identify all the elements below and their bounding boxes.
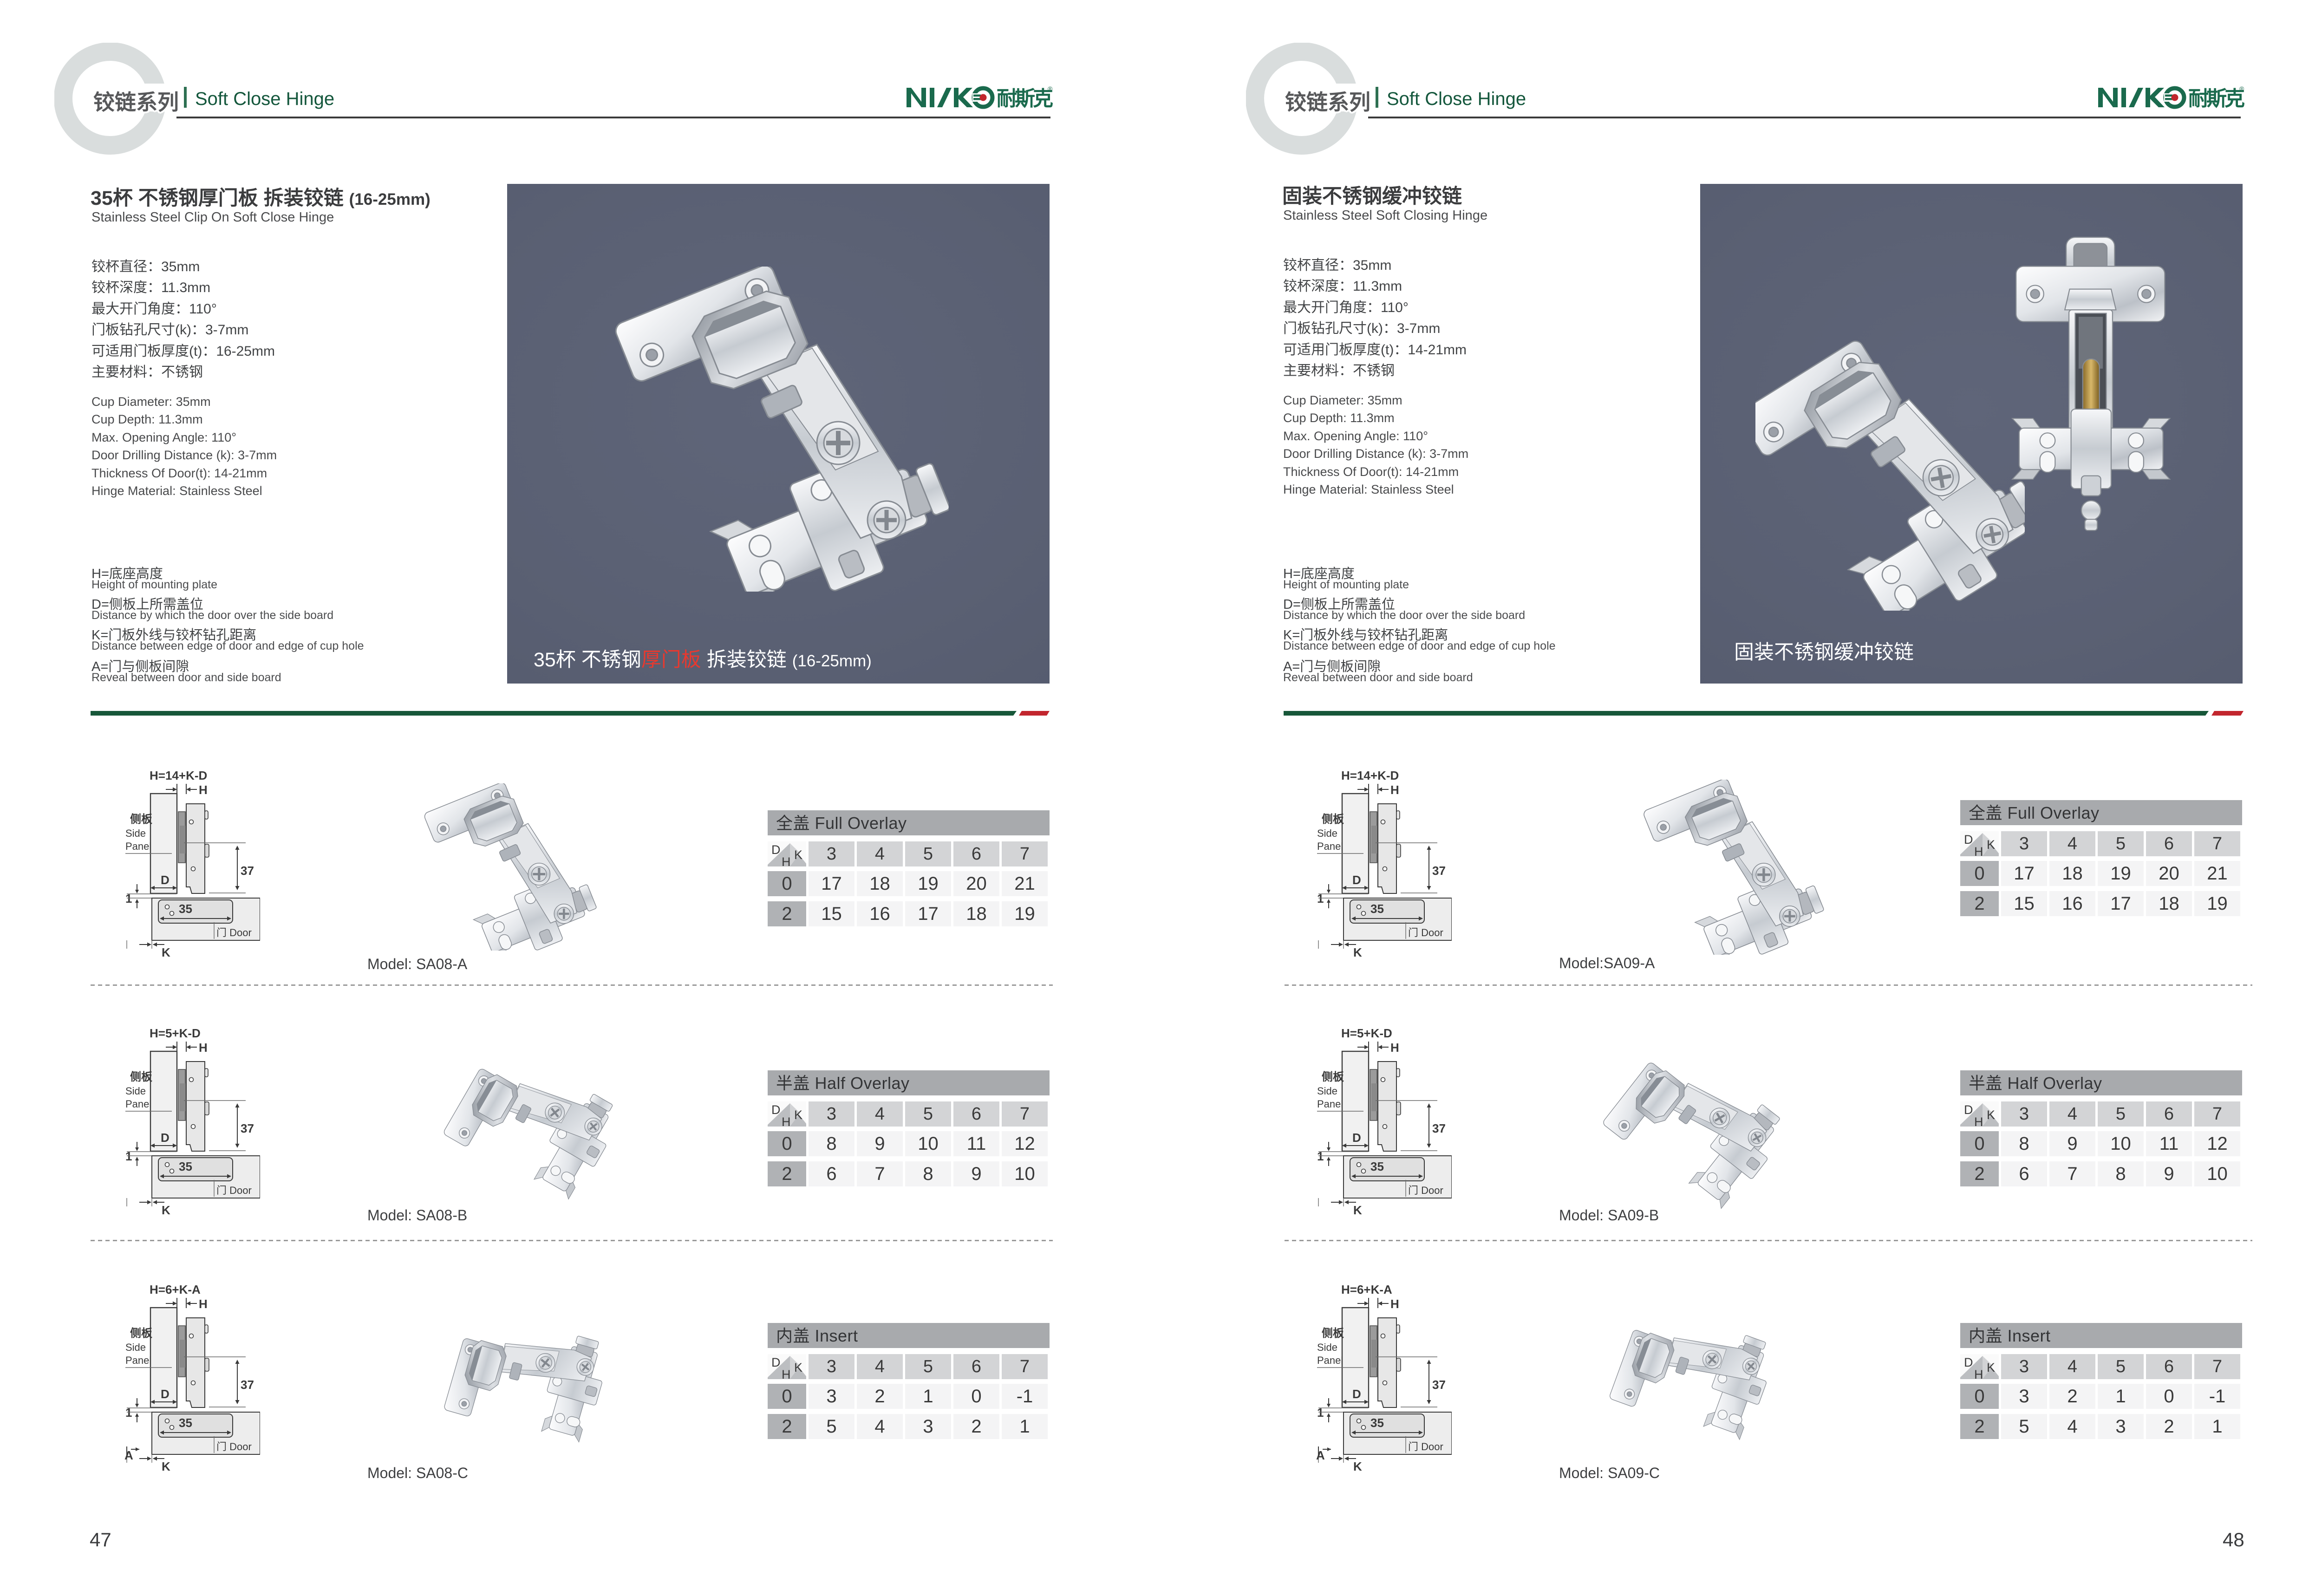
svg-text:Panel: Panel [1317, 1355, 1343, 1366]
svg-text:门 Door: 门 Door [216, 1441, 252, 1453]
svg-text:Side: Side [1317, 1085, 1337, 1097]
svg-text:Side: Side [1317, 827, 1337, 839]
svg-text:D: D [771, 843, 781, 857]
svg-text:D: D [161, 873, 170, 887]
svg-text:H: H [782, 1115, 791, 1127]
svg-text:Panel: Panel [125, 1098, 151, 1110]
svg-text:Side: Side [125, 1085, 146, 1097]
svg-text:Side: Side [1317, 1342, 1337, 1353]
svg-text:H=6+K-A: H=6+K-A [150, 1283, 201, 1296]
svg-text:H: H [782, 1368, 791, 1379]
svg-text:D: D [161, 1387, 170, 1401]
svg-text:K: K [1353, 1203, 1362, 1215]
svg-text:K: K [162, 1459, 170, 1472]
svg-text:H: H [1974, 1115, 1983, 1127]
svg-text:37: 37 [241, 1121, 254, 1135]
svg-text:耐斯克: 耐斯克 [997, 87, 1053, 110]
svg-text:H=14+K-D: H=14+K-D [150, 769, 207, 782]
svg-text:K: K [1987, 1361, 1995, 1375]
svg-text:K: K [162, 1203, 170, 1215]
svg-text:D: D [1352, 1387, 1361, 1401]
svg-text:D: D [1964, 1103, 1973, 1117]
svg-text:35: 35 [179, 1160, 192, 1173]
svg-text:®: ® [1048, 85, 1053, 92]
svg-text:侧板: 侧板 [130, 813, 153, 826]
svg-text:35: 35 [1370, 1416, 1384, 1430]
svg-text:Panel: Panel [125, 1355, 151, 1366]
svg-text:37: 37 [241, 1378, 254, 1392]
svg-text:H: H [199, 1041, 208, 1055]
svg-text:侧板: 侧板 [1322, 1070, 1344, 1083]
svg-text:Panel: Panel [1317, 1098, 1343, 1110]
svg-text:H: H [782, 855, 791, 866]
svg-text:H=5+K-D: H=5+K-D [150, 1026, 201, 1040]
svg-text:35: 35 [1370, 1160, 1384, 1173]
svg-text:D: D [161, 1131, 170, 1145]
svg-text:Side: Side [125, 827, 146, 839]
svg-text:®: ® [2239, 85, 2244, 92]
svg-text:门 Door: 门 Door [216, 927, 252, 938]
svg-text:门 Door: 门 Door [1408, 1185, 1443, 1196]
svg-text:35: 35 [179, 1416, 192, 1430]
svg-text:H: H [1390, 1041, 1399, 1055]
svg-text:37: 37 [241, 864, 254, 878]
svg-text:H: H [1390, 783, 1399, 797]
svg-text:D: D [1352, 1131, 1361, 1145]
svg-text:侧板: 侧板 [1322, 1327, 1344, 1340]
svg-text:K: K [794, 1361, 802, 1375]
svg-text:门 Door: 门 Door [1408, 1441, 1443, 1453]
svg-text:37: 37 [1432, 1378, 1446, 1392]
svg-text:Side: Side [125, 1342, 146, 1353]
svg-text:H: H [1390, 1297, 1399, 1311]
svg-text:D: D [771, 1355, 781, 1369]
svg-text:H: H [1974, 1368, 1983, 1379]
svg-text:侧板: 侧板 [1322, 813, 1344, 826]
svg-text:K: K [1987, 1108, 1995, 1122]
svg-text:A: A [124, 1448, 133, 1462]
svg-text:K: K [794, 1108, 802, 1122]
svg-text:门 Door: 门 Door [216, 1185, 252, 1196]
svg-text:Panel: Panel [1317, 840, 1343, 852]
svg-text:H: H [199, 783, 208, 797]
svg-text:门 Door: 门 Door [1408, 927, 1443, 938]
svg-text:Panel: Panel [125, 840, 151, 852]
svg-text:D: D [1352, 873, 1361, 887]
svg-text:K: K [794, 848, 802, 862]
svg-text:35: 35 [1370, 902, 1384, 916]
svg-text:K: K [1353, 1459, 1362, 1472]
svg-text:耐斯克: 耐斯克 [2188, 87, 2245, 110]
svg-text:H=5+K-D: H=5+K-D [1341, 1026, 1392, 1040]
svg-text:D: D [1964, 833, 1973, 847]
svg-text:K: K [162, 945, 170, 958]
svg-text:侧板: 侧板 [130, 1327, 153, 1340]
svg-text:37: 37 [1432, 864, 1446, 878]
svg-text:D: D [1964, 1355, 1973, 1369]
svg-text:H=14+K-D: H=14+K-D [1341, 769, 1399, 782]
svg-text:侧板: 侧板 [130, 1070, 153, 1083]
svg-text:K: K [1987, 838, 1995, 852]
svg-text:D: D [771, 1103, 781, 1117]
svg-text:A: A [1316, 1448, 1325, 1462]
svg-text:K: K [1353, 945, 1362, 958]
svg-text:H: H [199, 1297, 208, 1311]
svg-text:37: 37 [1432, 1121, 1446, 1135]
svg-text:H: H [1974, 845, 1983, 856]
svg-text:H=6+K-A: H=6+K-A [1341, 1283, 1392, 1296]
svg-text:35: 35 [179, 902, 192, 916]
